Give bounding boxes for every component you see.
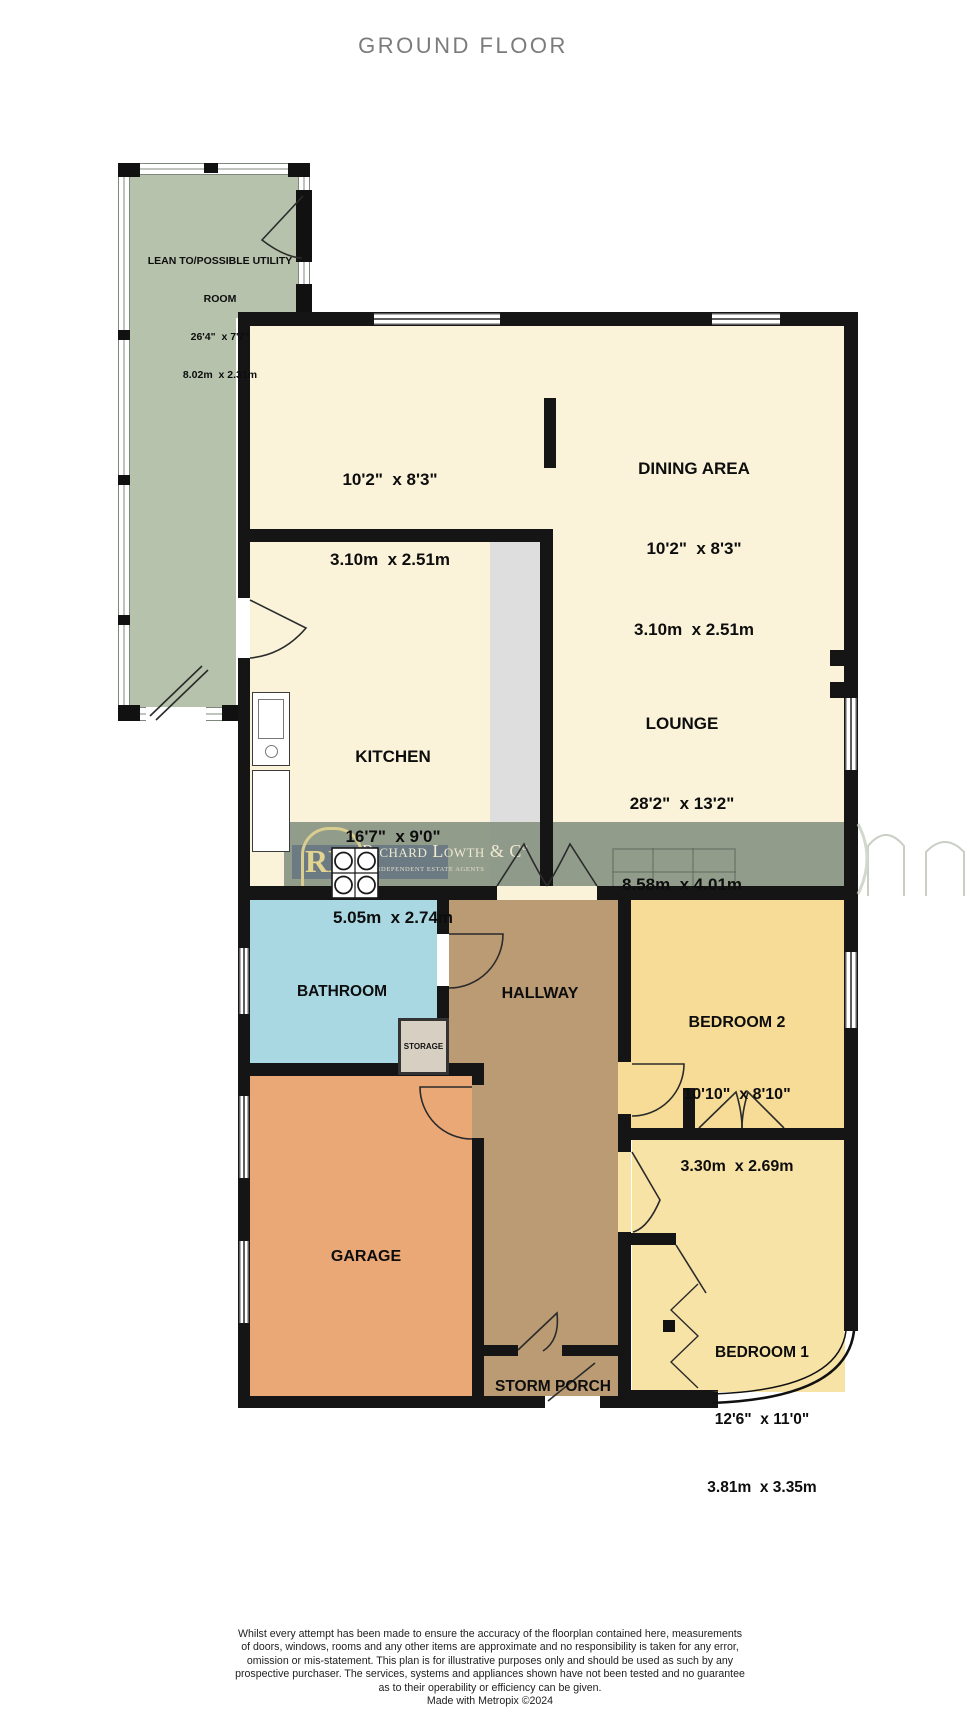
dining-area-label: DINING AREA 10'2" x 8'3" 3.10m x 2.51m — [634, 402, 754, 697]
window-dining-right — [712, 313, 780, 325]
watermark-curve-graphic — [858, 824, 867, 894]
wall-post — [288, 163, 310, 177]
hallway-label: HALLWAY — [502, 981, 579, 1006]
glazing-bar — [204, 163, 218, 173]
bedroom1-door-opening — [618, 1152, 631, 1232]
bathroom-label: BATHROOM — [297, 980, 387, 1004]
window-bathroom — [239, 948, 249, 1014]
window-bedroom2 — [845, 952, 857, 1028]
lean-to-label: LEAN TO/POSSIBLE UTILITY ROOM 26'4" x 7'… — [148, 230, 292, 406]
glazing-bar — [118, 475, 130, 485]
garage-door-opening — [472, 1085, 484, 1138]
sink-tap-icon — [265, 745, 278, 758]
sink-bowl-icon — [258, 699, 284, 739]
sink-unit-icon — [252, 692, 290, 766]
garage-room — [250, 1076, 472, 1396]
watermark-arch-graphic — [868, 835, 904, 896]
wall-porch-right-stub — [562, 1345, 620, 1356]
wall-post — [118, 163, 140, 177]
wall-lounge-left — [540, 529, 553, 900]
wall-closet-stub — [631, 1233, 676, 1245]
bedroom2-door-opening — [618, 1062, 631, 1114]
kitchen-door-opening — [238, 598, 250, 658]
kitchen-label: KITCHEN 16'7" x 9'0" 5.05m x 2.74m — [333, 690, 453, 985]
storage-label: STORAGE — [404, 1042, 443, 1051]
disclaimer: Whilst every attempt has been made to en… — [0, 1628, 980, 1708]
watermark-arch-graphic — [926, 842, 964, 896]
wall-post — [118, 705, 140, 721]
counter-unit-icon — [252, 770, 290, 852]
bedroom2-label: BEDROOM 2 10'10" x 8'10" 3.30m x 2.69m — [681, 963, 794, 1227]
lean-to-door-opening — [146, 707, 206, 721]
storage-room: STORAGE — [398, 1018, 449, 1075]
chimney-stub — [830, 682, 844, 698]
window-lounge — [845, 698, 857, 770]
bedroom1-label: BEDROOM 1 12'6" x 11'0" 3.81m x 3.35m — [707, 1297, 816, 1544]
wall-bathroom-right-lower — [437, 986, 449, 1020]
lounge-label: LOUNGE 28'2" x 13'2" 8.58m x 4.01m — [622, 657, 742, 952]
floorplan-canvas: GROUND FLOOR rl Richard Lowth & Cº INDEP… — [0, 0, 980, 1713]
chimney-stub — [830, 650, 844, 666]
wall-exterior-right — [844, 312, 858, 1331]
wall-post — [296, 190, 312, 262]
storm-porch-label: STORM PORCH — [495, 1375, 611, 1399]
wall-dining-divider — [544, 398, 556, 468]
page-title: GROUND FLOOR — [358, 33, 568, 59]
lounge-door-opening — [497, 886, 597, 900]
lean-to-wall-left — [118, 163, 130, 721]
window-garage-1 — [239, 1096, 249, 1178]
wardrobe-post — [663, 1320, 675, 1332]
window-dining-left — [374, 313, 500, 325]
dining-left-label: 10'2" x 8'3" 3.10m x 2.51m — [330, 413, 450, 628]
glazing-bar — [118, 615, 130, 625]
glazing-bar — [118, 330, 130, 340]
garage-label: GARAGE — [331, 1244, 401, 1269]
metropix-credit: Made with Metropix ©2024 — [0, 1695, 980, 1708]
window-garage-2 — [239, 1241, 249, 1323]
wall-bedroom1-bottom — [618, 1390, 718, 1402]
wall-porch-left-stub — [484, 1345, 518, 1356]
